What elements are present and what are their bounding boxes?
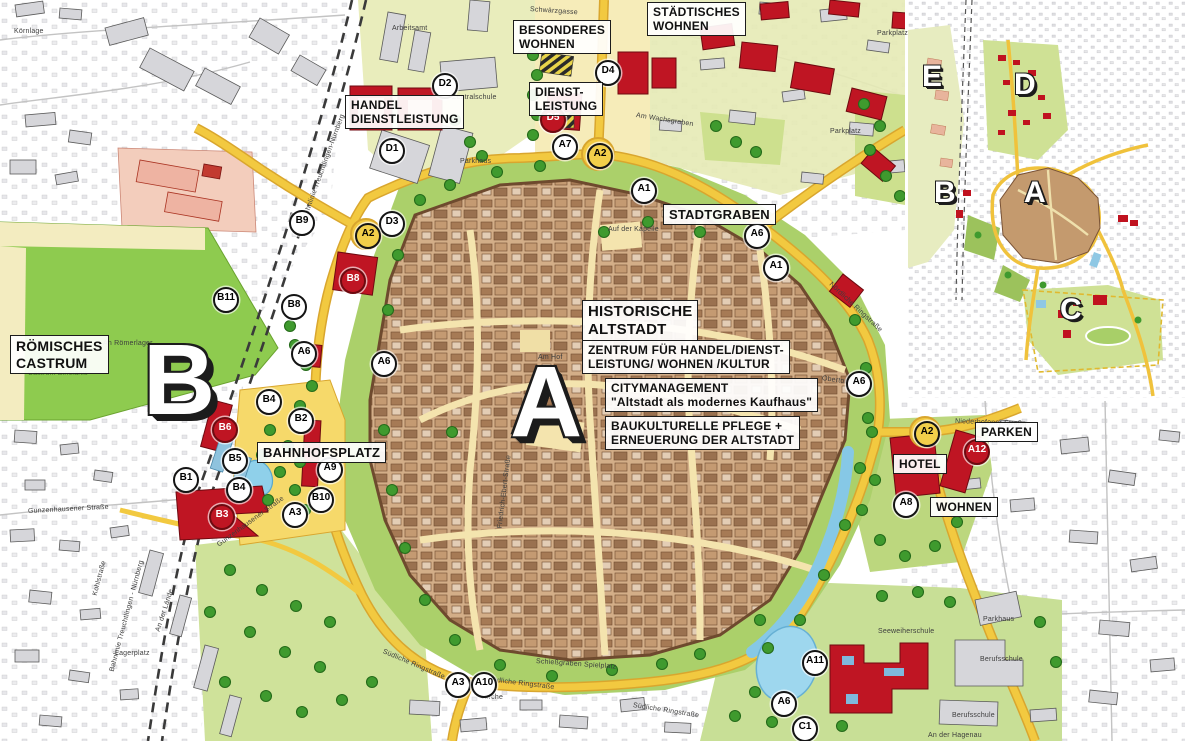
marker-A1: A1: [763, 255, 789, 281]
zone-letter-B: B: [143, 330, 215, 430]
marker-A6: A6: [744, 223, 770, 249]
marker-B2: B2: [288, 408, 314, 434]
street-label: Seeweiherschule: [878, 628, 934, 635]
street-label: Berufsschule: [980, 656, 1023, 663]
marker-B4: B4: [256, 389, 282, 415]
zone-letter-A: A: [510, 352, 582, 452]
marker-A6: A6: [371, 351, 397, 377]
marker-A2: A2: [355, 223, 381, 249]
area-label-hotel: HOTEL: [893, 454, 947, 474]
area-label-citymanagement: CITYMANAGEMENT "Altstadt als modernes Ka…: [605, 378, 818, 412]
pink-zone: [118, 148, 256, 232]
marker-A10: A10: [471, 672, 497, 698]
marker-A6: A6: [291, 341, 317, 367]
city-plan-map: EDBAC STÄDTISCHES WOHNENBESONDERES WOHNE…: [0, 0, 1185, 741]
marker-B1: B1: [173, 467, 199, 493]
area-label-handel-dienstleistung: HANDEL DIENSTLEISTUNG: [345, 95, 464, 129]
marker-B4: B4: [226, 477, 252, 503]
street-label: Körnlage: [14, 28, 44, 35]
area-label-roemisches-castrum: RÖMISCHES CASTRUM: [10, 335, 109, 374]
inset-overview-map: EDBAC: [905, 0, 1185, 401]
area-label-baukulturelle-pflege: BAUKULTURELLE PFLEGE + ERNEUERUNG DER AL…: [605, 416, 800, 450]
area-label-historische-altstadt: HISTORISCHE ALTSTADT: [582, 300, 698, 341]
marker-B11: B11: [213, 287, 239, 313]
street-label: Lagerplatz: [115, 650, 150, 657]
marker-A3: A3: [445, 672, 471, 698]
marker-A8: A8: [893, 492, 919, 518]
inset-zone-letter-C: C: [1060, 295, 1082, 325]
marker-B9: B9: [289, 210, 315, 236]
marker-D1: D1: [379, 138, 405, 164]
street-label: Arbeitsamt: [392, 25, 427, 32]
area-label-parken: PARKEN: [975, 422, 1038, 442]
inset-zone-letter-D: D: [1014, 70, 1036, 100]
marker-A6: A6: [771, 691, 797, 717]
street-label: Berufsschule: [952, 712, 995, 719]
area-label-besonderes-wohnen: BESONDERES WOHNEN: [513, 20, 611, 54]
marker-A3: A3: [282, 502, 308, 528]
area-label-zentrum-fuer-handel: ZENTRUM FÜR HANDEL/DIENST- LEISTUNG/ WOH…: [582, 340, 790, 374]
inset-zone-letter-E: E: [922, 62, 942, 92]
marker-D3: D3: [379, 211, 405, 237]
marker-B3: B3: [209, 504, 235, 530]
area-label-bahnhofsplatz: BAHNHOFSPLATZ: [257, 442, 386, 463]
street-label: Auf der Kapelle: [608, 226, 659, 233]
area-label-dienstleistung: DIENST- LEISTUNG: [529, 82, 603, 116]
marker-C1: C1: [792, 716, 818, 741]
marker-A12: A12: [964, 439, 990, 465]
street-label: Parkplatz: [830, 128, 861, 135]
street-label: An der Hagenau: [928, 732, 982, 739]
street-label: Parkhaus: [460, 158, 491, 165]
marker-A7: A7: [552, 134, 578, 160]
area-label-wohnen: WOHNEN: [930, 497, 998, 517]
street-label: Parkhaus: [983, 616, 1014, 623]
marker-B8: B8: [281, 294, 307, 320]
marker-B8: B8: [340, 268, 366, 294]
marker-B5: B5: [222, 448, 248, 474]
street-label: Parkplatz: [877, 30, 908, 37]
marker-B10: B10: [308, 487, 334, 513]
marker-A6: A6: [846, 371, 872, 397]
area-label-staedtisches-wohnen: STÄDTISCHES WOHNEN: [647, 2, 746, 36]
marker-A2: A2: [914, 421, 940, 447]
marker-A1: A1: [631, 178, 657, 204]
inset-zone-letter-A: A: [1024, 178, 1046, 208]
area-label-stadtgraben: STADTGRABEN: [663, 204, 776, 225]
marker-A11: A11: [802, 650, 828, 676]
marker-B6: B6: [212, 417, 238, 443]
marker-A2: A2: [587, 143, 613, 169]
inset-zone-letter-B: B: [934, 178, 956, 208]
